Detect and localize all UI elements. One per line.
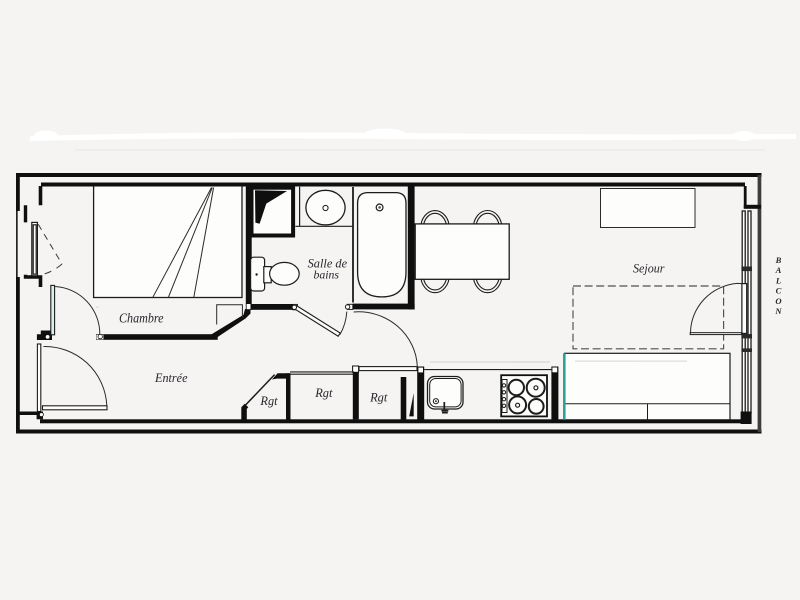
svg-text:Sejour: Sejour [633,262,665,276]
svg-text:bains: bains [314,268,340,281]
svg-text:B: B [775,255,782,265]
svg-text:N: N [774,306,782,316]
svg-text:A: A [775,265,782,275]
svg-text:C: C [776,286,782,296]
svg-text:Rgt: Rgt [314,386,333,400]
svg-text:O: O [775,296,781,306]
svg-text:Rgt: Rgt [259,394,278,408]
svg-text:Chambre: Chambre [119,311,164,326]
svg-text:L: L [775,275,781,285]
svg-text:Rgt: Rgt [369,390,388,404]
svg-text:Entrée: Entrée [154,371,188,385]
